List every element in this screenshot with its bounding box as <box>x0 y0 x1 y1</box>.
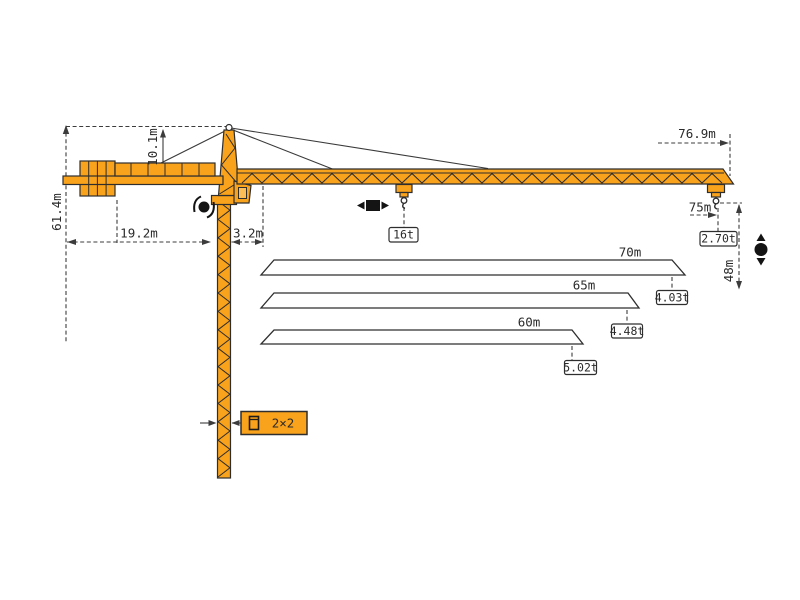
jib-pendant-1 <box>231 129 336 170</box>
tip-radius-label: 76.9m <box>678 126 716 141</box>
mast-width-arrow-left <box>209 420 217 426</box>
hook-block <box>712 193 721 198</box>
trolley-body <box>708 185 725 193</box>
total-height-label: 61.4m <box>49 193 64 231</box>
main-jib <box>237 169 734 184</box>
tip-load-value: 2.70t <box>701 232 736 246</box>
hoist-icon <box>755 234 768 266</box>
jib-length-label: 75m <box>689 200 712 215</box>
jib-foot-offset-label: 3.2m <box>233 226 263 241</box>
tower-mast <box>218 200 231 478</box>
trolley-travel-icon <box>357 200 389 211</box>
crane-spec-sheet: 2×2 61.4m 10.1m 19.2m 3.2m 76.9m 75m 48m… <box>0 0 800 600</box>
jib-option-65m-label: 65m <box>573 278 596 293</box>
cab-window <box>239 188 247 199</box>
mast-section-label: 2×2 <box>272 416 295 431</box>
jib-option-60m-bar <box>261 330 583 344</box>
trolley-body <box>396 185 412 193</box>
jib-option-70m-label: 70m <box>619 245 642 260</box>
counter-jib-radius-arrow-left <box>67 239 76 245</box>
max-load-value: 16t <box>393 228 414 242</box>
hook-ring <box>713 198 719 204</box>
hook-ring <box>401 198 407 204</box>
tip-radius-arrow <box>720 140 729 146</box>
hook-height-arrow-down <box>736 281 742 290</box>
hook-height-label: 48m <box>721 260 736 283</box>
mast-width-arrow-right <box>232 420 240 426</box>
head-height-label: 10.1m <box>145 128 160 166</box>
jib-option-70m-bar <box>261 260 685 275</box>
trolley-mid <box>396 185 412 209</box>
jib-option-65m-bar <box>261 293 639 308</box>
tip-load-70m-value: 4.03t <box>655 291 690 305</box>
motion-symbols <box>194 197 767 266</box>
counter-jib-beam <box>63 176 223 185</box>
apex-pin <box>226 125 232 131</box>
slewing-platform <box>212 196 237 205</box>
counter-jib-radius-arrow-right <box>202 239 211 245</box>
tip-load-60m-value: 5.02t <box>563 361 598 375</box>
crane-diagram: 2×2 61.4m 10.1m 19.2m 3.2m 76.9m 75m 48m… <box>0 0 800 600</box>
head-height-arrow-up <box>160 129 166 138</box>
jib-pendant-2 <box>231 128 488 169</box>
tip-load-65m-value: 4.48t <box>610 324 645 338</box>
jib-option-60m-label: 60m <box>518 315 541 330</box>
mast-section-callout: 2×2 <box>200 412 307 435</box>
counter-jib-pendant <box>160 129 229 164</box>
hook-height-arrow-up <box>736 204 742 213</box>
jib-option-charts <box>261 260 685 360</box>
hook-block <box>400 193 408 198</box>
counter-jib-radius-label: 19.2m <box>120 226 158 241</box>
